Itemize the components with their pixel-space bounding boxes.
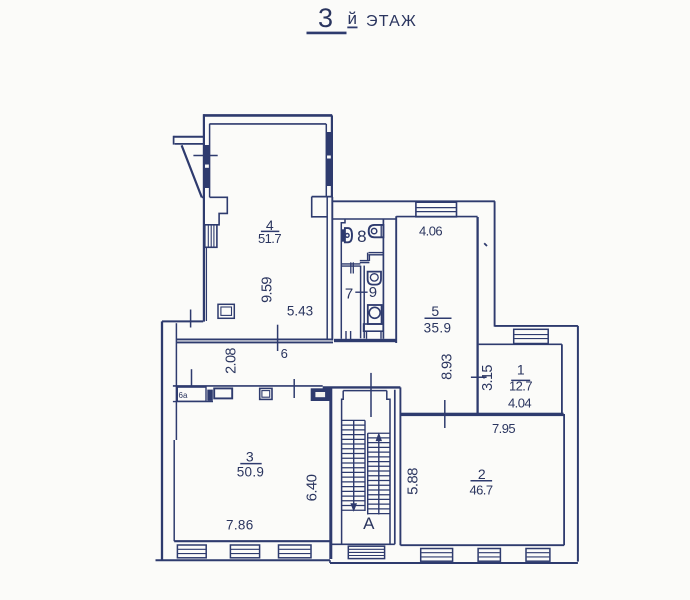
- svg-text:6а: 6а: [179, 391, 188, 400]
- svg-text:35.9: 35.9: [424, 321, 452, 336]
- svg-text:5: 5: [431, 303, 439, 319]
- svg-text:А: А: [363, 514, 375, 533]
- svg-text:46.7: 46.7: [470, 483, 493, 498]
- svg-text:3: 3: [318, 3, 333, 33]
- svg-text:7.86: 7.86: [226, 518, 253, 533]
- svg-text:6: 6: [281, 346, 288, 361]
- svg-text:6.40: 6.40: [304, 474, 321, 501]
- svg-text:9: 9: [369, 284, 377, 301]
- svg-text:ЭТАЖ: ЭТАЖ: [366, 13, 417, 30]
- svg-text:8.93: 8.93: [440, 354, 456, 380]
- svg-text:7.95: 7.95: [492, 421, 515, 436]
- svg-text:3: 3: [246, 449, 254, 465]
- svg-text:5.43: 5.43: [287, 304, 313, 319]
- svg-text:12.7: 12.7: [509, 379, 532, 394]
- svg-text:8: 8: [357, 227, 366, 246]
- svg-text:1: 1: [517, 362, 525, 378]
- svg-text:й: й: [348, 9, 358, 28]
- svg-text:2.08: 2.08: [224, 348, 240, 374]
- svg-text:7: 7: [345, 285, 353, 302]
- svg-text:4.06: 4.06: [419, 224, 442, 239]
- svg-text:5.88: 5.88: [405, 468, 422, 495]
- svg-text:4.04: 4.04: [508, 396, 531, 411]
- svg-text:50.9: 50.9: [237, 465, 264, 480]
- svg-text:2: 2: [478, 466, 486, 482]
- svg-text:3.15: 3.15: [480, 365, 496, 391]
- svg-text:51.7: 51.7: [258, 231, 281, 246]
- svg-text:9.59: 9.59: [260, 277, 276, 303]
